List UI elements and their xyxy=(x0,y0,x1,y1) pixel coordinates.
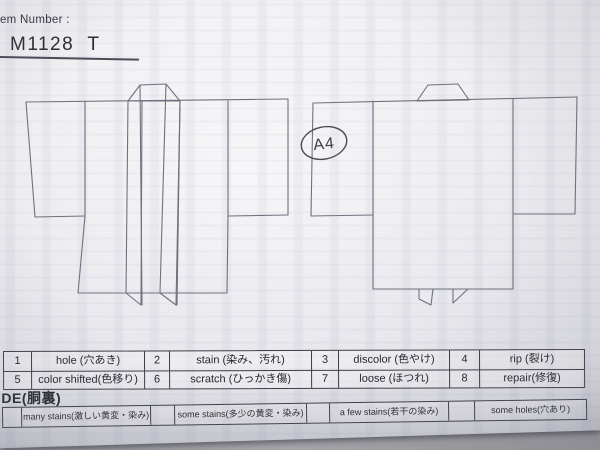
grade-label: some holes(穴あり) xyxy=(474,400,586,421)
item-number-underline xyxy=(0,56,139,60)
inside-lining-label: IDE(胴裏) xyxy=(0,388,61,408)
defect-label: discolor (色やけ) xyxy=(338,350,449,369)
kimono-back-diagram xyxy=(311,84,577,305)
grade-label: a few stains(若干の染み) xyxy=(329,402,448,423)
paper-sheet: Item Number : M1128 T xyxy=(0,0,600,450)
defect-num: 3 xyxy=(311,351,338,370)
defect-table: 1 hole (穴あき) 2 stain (染み、汚れ) 3 discolor … xyxy=(3,349,585,390)
front-right-band xyxy=(160,84,180,305)
a4-annotation: A4 xyxy=(298,123,350,164)
kimono-diagrams: A4 xyxy=(0,0,600,450)
defect-label: scratch (ひっかき傷) xyxy=(169,369,311,388)
front-left-band xyxy=(126,101,142,305)
defect-num: 2 xyxy=(144,351,169,370)
a4-text: A4 xyxy=(313,135,336,154)
defect-num: 4 xyxy=(449,350,479,369)
defect-label: loose (ほつれ) xyxy=(338,369,449,388)
grade-checkbox-cell xyxy=(150,406,174,425)
defect-label: color shifted(色移り) xyxy=(31,370,144,389)
defect-label: rip (裂け) xyxy=(479,350,584,369)
defect-num: 7 xyxy=(311,369,338,388)
item-number-value: M1128 T xyxy=(10,34,101,56)
back-collar xyxy=(417,84,469,101)
defect-num: 5 xyxy=(4,370,31,389)
defect-label: hole (穴あき) xyxy=(31,352,144,371)
a4-circle xyxy=(298,123,350,164)
kimono-front-diagram xyxy=(26,84,288,305)
item-number-label: Item Number : xyxy=(0,14,70,26)
grade-label: many stains(激しい黄変・染み) xyxy=(21,406,150,427)
defect-num: 8 xyxy=(449,369,479,388)
photographed-condition-sheet: { "header": { "label": "Item Number :", … xyxy=(0,0,600,450)
front-collar xyxy=(128,84,180,101)
defect-num: 1 xyxy=(4,352,31,371)
grade-checkbox-cell xyxy=(448,401,474,420)
paper-sheet-wrapper: Item Number : M1128 T xyxy=(0,0,600,450)
defect-label: repair(修復) xyxy=(479,368,584,387)
stain-grade-row: many stains(激しい黄変・染み) some stains(多少の黄変・… xyxy=(2,399,587,428)
back-left-vent xyxy=(419,289,433,305)
grade-checkbox-cell xyxy=(3,408,21,427)
grade-checkbox-cell xyxy=(306,403,329,422)
defect-label: stain (染み、汚れ) xyxy=(169,351,311,370)
back-right-vent xyxy=(453,289,468,303)
defect-num: 6 xyxy=(144,370,169,389)
grade-label: some stains(多少の黄変・染み) xyxy=(174,404,306,425)
